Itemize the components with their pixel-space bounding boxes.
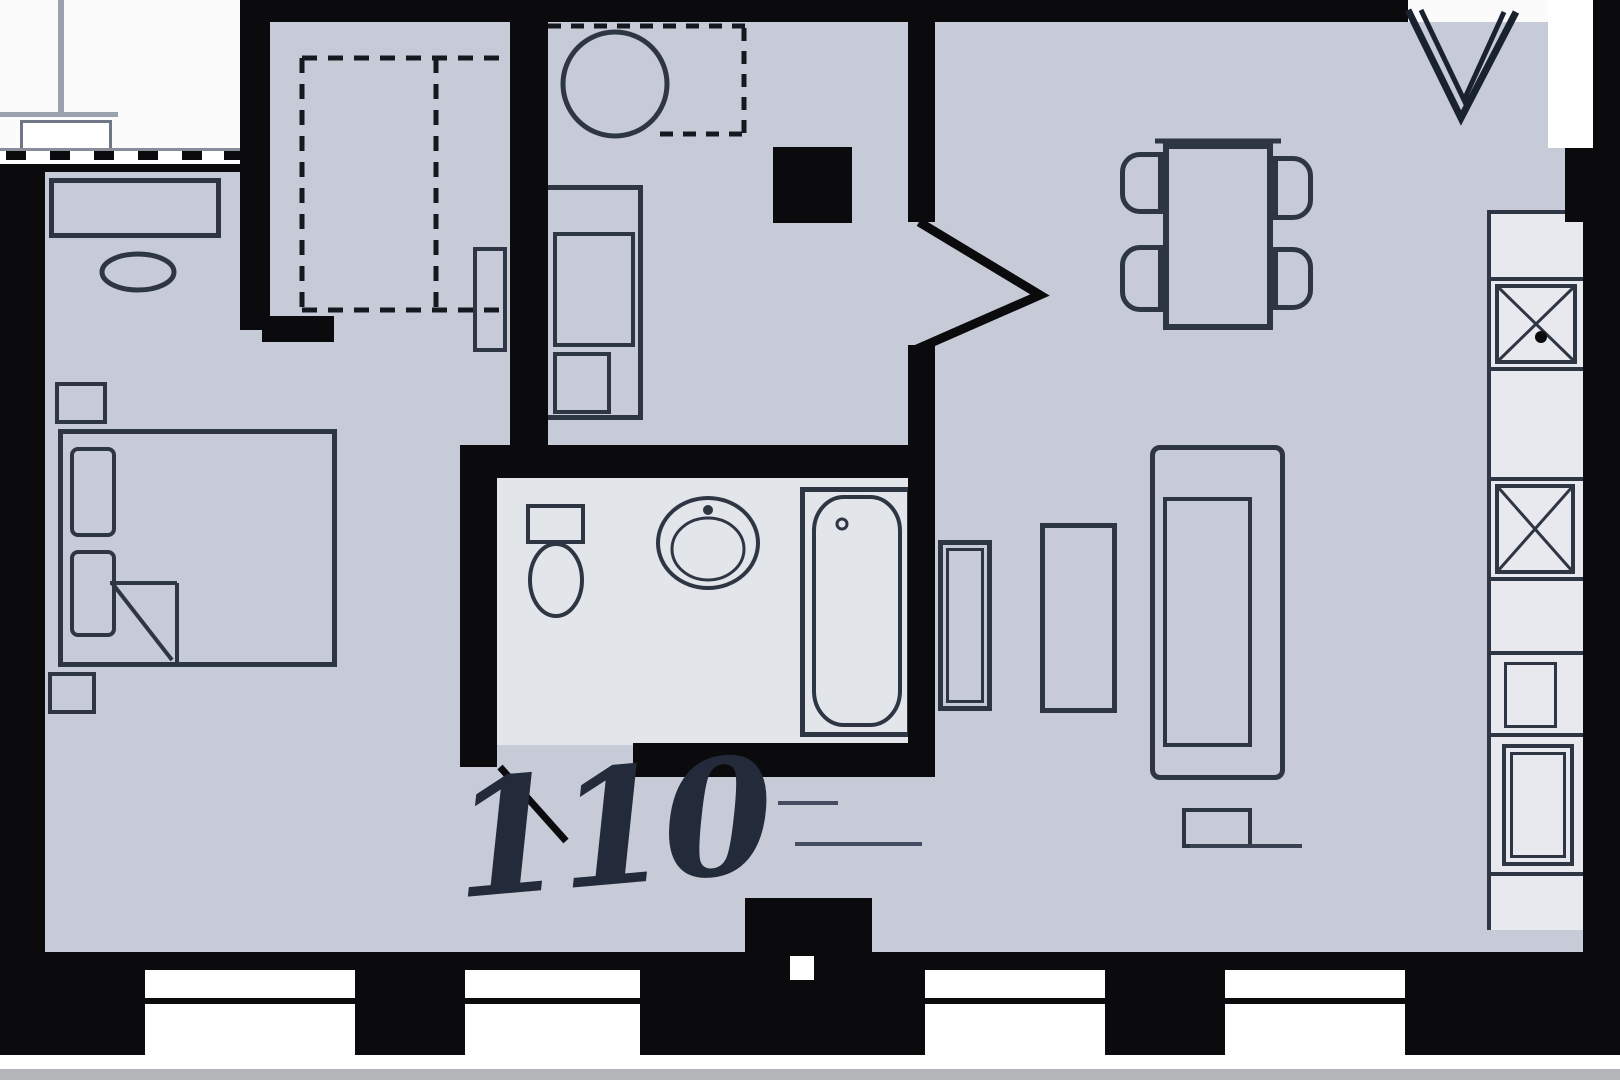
entry-door-swing xyxy=(1408,10,1516,118)
splayed-doorway xyxy=(917,222,1040,349)
washing-machine-icon xyxy=(563,32,667,136)
toilet-icon xyxy=(530,544,582,616)
leader-lines xyxy=(778,803,922,844)
plan-lines-overlay xyxy=(0,0,1620,1080)
wardrobe-dashed-outline xyxy=(302,58,505,310)
bathtub-inner xyxy=(814,497,900,725)
tv-icon xyxy=(102,254,174,290)
blanket-fold xyxy=(110,583,177,663)
room-number-label: 110 xyxy=(446,735,775,922)
basin-icon xyxy=(658,498,758,588)
apartment-floorplan: 110 xyxy=(0,0,1620,1080)
